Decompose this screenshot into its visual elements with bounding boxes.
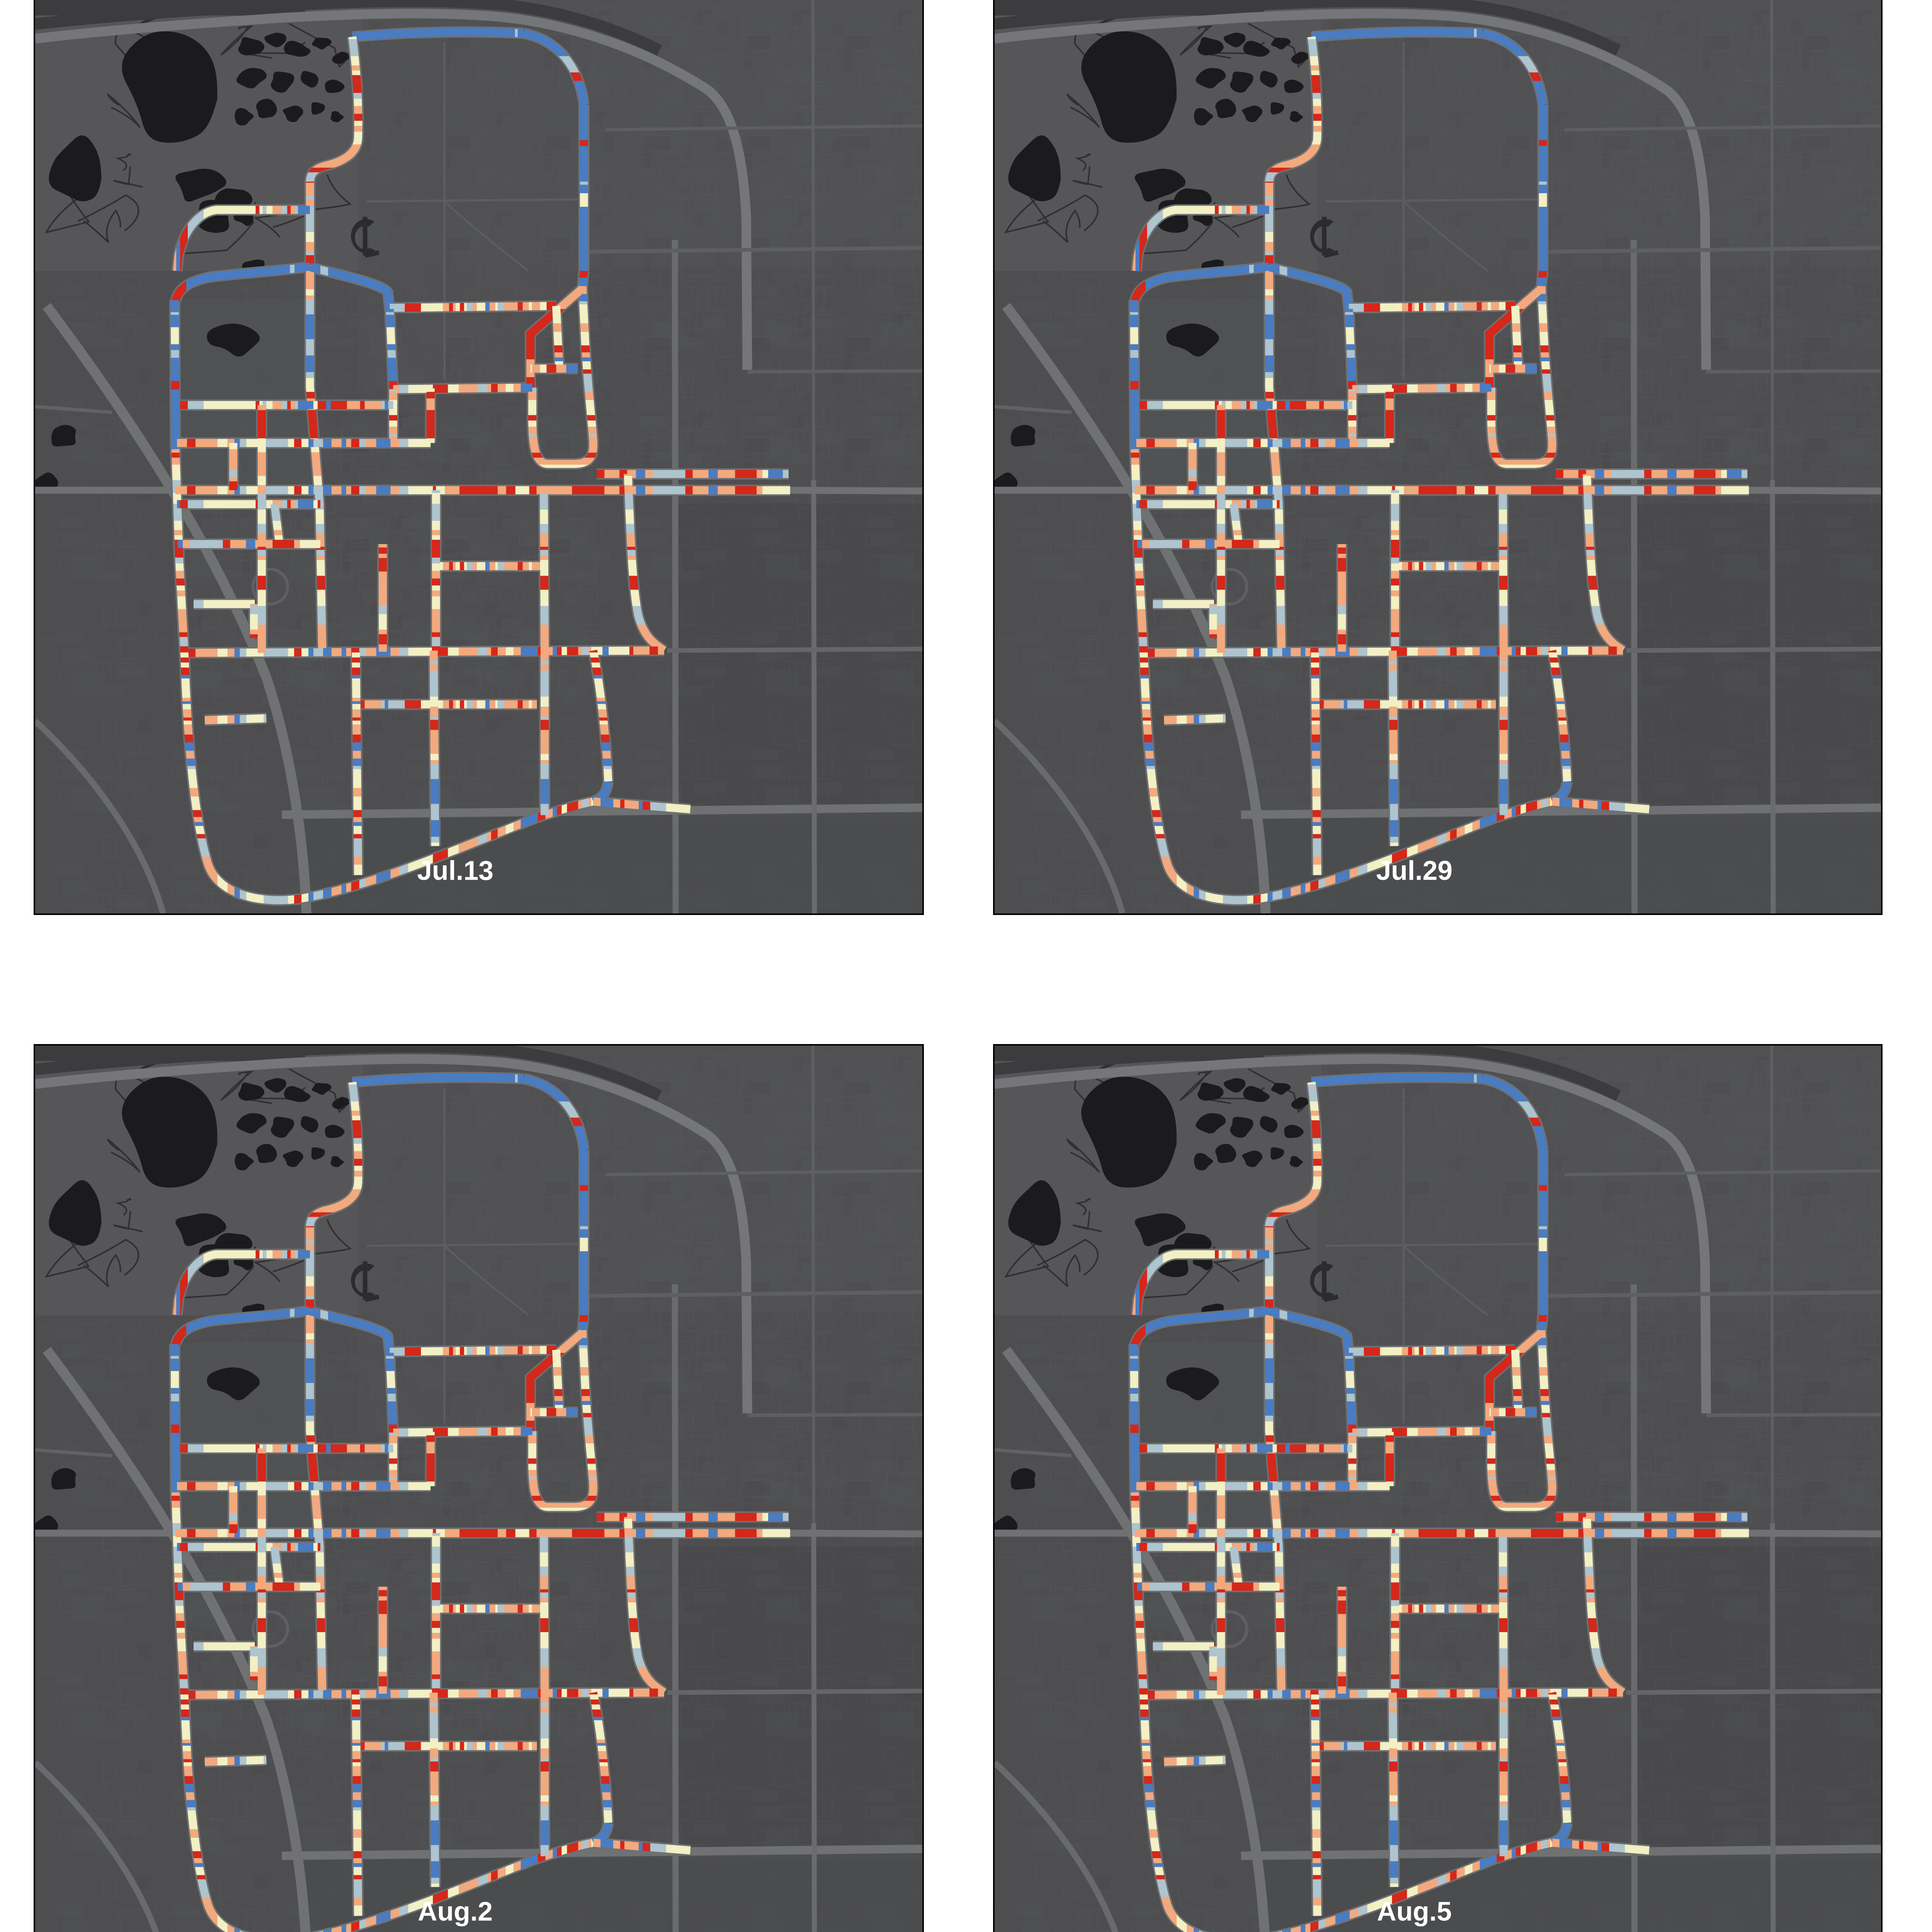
svg-text:Aug.2: Aug.2 bbox=[418, 1896, 493, 1926]
svg-text:Jul.29: Jul.29 bbox=[1376, 855, 1452, 886]
svg-text:Jul.13: Jul.13 bbox=[417, 855, 493, 886]
svg-text:Aug.5: Aug.5 bbox=[1377, 1896, 1452, 1926]
